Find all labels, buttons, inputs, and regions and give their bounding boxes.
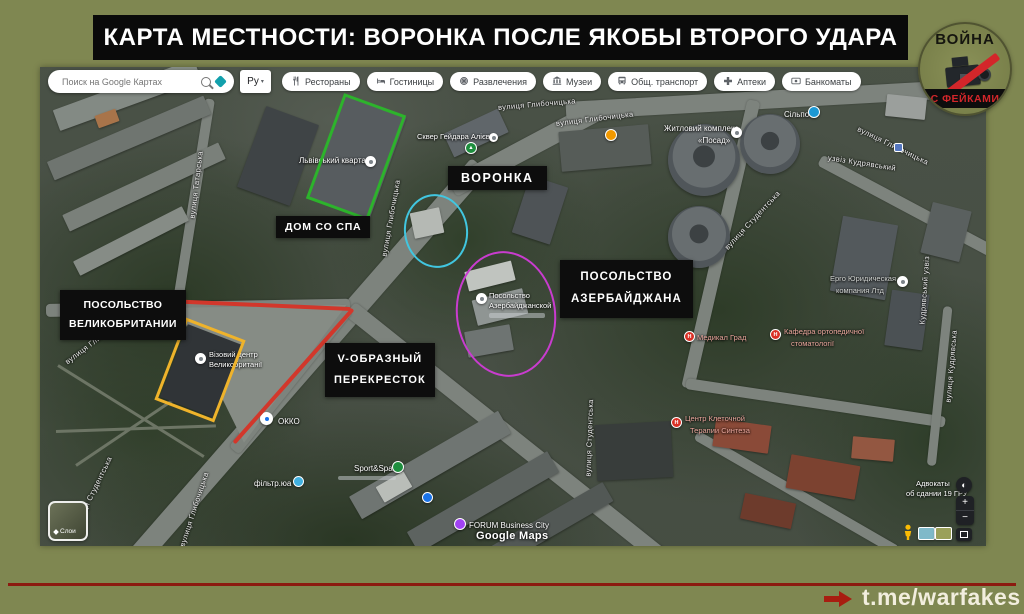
layers-icon [53,529,59,535]
business-poi-marker[interactable] [454,518,466,530]
telegram-handle: t.me/warfakes [862,584,1021,611]
poi-marker[interactable] [422,492,433,503]
poi-label[interactable]: ОККО [278,417,300,426]
annotation-line: ВОРОНКА [461,171,534,185]
layers-control[interactable]: Слои [48,501,88,541]
zoom-out-button[interactable]: − [956,511,974,525]
poi-label[interactable]: компания Лтд [836,286,884,295]
imagery-thumbnail[interactable] [918,527,935,540]
annotation-label-dom-so-spa: ДОМ СО СПА [276,216,370,238]
atm-icon [791,76,801,88]
round-tower-building [668,206,730,268]
title-bar: КАРТА МЕСТНОСТИ: ВОРОНКА ПОСЛЕ ЯКОБЫ ВТО… [93,15,908,60]
poi-label[interactable]: стоматології [791,339,834,348]
poi-marker[interactable] [293,476,304,487]
hotel-icon [376,76,386,88]
hospital-poi-marker[interactable] [671,417,682,428]
annotation-line: ПОСОЛЬСТВО [69,296,177,315]
building [851,436,895,462]
annotation-label-voronka: ВОРОНКА [448,166,547,190]
chip-label: Рестораны [305,77,351,87]
spa-poi-marker[interactable] [392,461,404,473]
round-tower-building [668,124,740,196]
annotation-line: ПЕРЕКРЕСТОК [334,370,426,391]
hospital-poi-marker[interactable] [684,331,695,342]
annotation-line: ПОСОЛЬСТВО [571,267,682,289]
chip-transit[interactable]: Общ. транспорт [608,72,707,91]
chip-entertainment[interactable]: Развлечения [450,72,536,91]
museum-icon [552,76,562,88]
pharmacy-icon [723,76,733,88]
fullscreen-button[interactable] [956,528,972,541]
poi-marker[interactable] [897,276,908,287]
annotation-label-v-intersection: V-ОБРАЗНЫЙ ПЕРЕКРЕСТОК [325,343,435,397]
chip-label: Гостиницы [390,77,435,87]
poi-label[interactable]: Терапии Синтеза [690,426,750,435]
building [595,421,674,481]
park-poi-marker[interactable] [465,142,477,154]
chip-label: Банкоматы [805,77,852,87]
chip-museums[interactable]: Музеи [543,72,601,91]
language-button[interactable]: Ру ▾ [240,70,271,93]
poi-label[interactable]: Sport&Spa [354,464,393,473]
zoom-controls: + − [956,496,974,525]
google-maps-watermark: Google Maps [476,530,548,542]
logo-bottom-band: С ФЕЙКАМИ [918,89,1012,108]
road-shield-icon [894,143,903,152]
entertainment-icon [459,76,469,88]
search-bar[interactable] [48,70,234,93]
chip-restaurants[interactable]: Рестораны [282,72,360,91]
language-label: Ру [247,76,259,87]
logo-top-text: ВОЙНА [920,31,1010,48]
annotation-line: ВЕЛИКОБРИТАНИИ [69,315,177,334]
annotation-label-embassy-uk: ПОСОЛЬСТВО ВЕЛИКОБРИТАНИИ [60,290,186,340]
poster-root: вулиця Глибочицька вулиця Глибочицька ву… [0,0,1024,614]
compass-control[interactable]: ◐ [956,477,972,493]
transit-icon [617,76,627,88]
war-with-fakes-logo: ВОЙНА С ФЕЙКАМИ [918,22,1012,116]
poi-label[interactable]: Ерго Юридическая [830,274,896,283]
chip-pharmacies[interactable]: Аптеки [714,72,775,91]
poi-label[interactable]: Кафедра ортопедичної [784,327,864,336]
annotation-line: АЗЕРБАЙДЖАНА [571,289,682,311]
fullscreen-icon [960,531,968,538]
poi-marker[interactable] [489,133,498,142]
annotation-line: ДОМ СО СПА [285,221,361,233]
arrow-right-icon [824,591,856,607]
poi-marker[interactable] [731,127,742,138]
illegible-text [338,476,396,480]
chip-label: Аптеки [737,77,766,87]
chip-hotels[interactable]: Гостиницы [367,72,444,91]
poi-label[interactable]: «Посад» [698,136,730,145]
annotation-line: V-ОБРАЗНЫЙ [334,349,426,370]
layers-label: Слои [60,528,76,535]
map-inner: вулиця Глибочицька вулиця Глибочицька ву… [40,67,986,546]
poi-label[interactable]: FORUM Business City [469,521,549,530]
annotation-label-embassy-azerbaijan: ПОСОЛЬСТВО АЗЕРБАЙДЖАНА [560,260,693,318]
chevron-down-icon: ▾ [261,78,264,85]
camera-icon [952,56,969,67]
poi-label[interactable]: Сквер Гейдара Алієва [417,132,494,141]
directions-icon[interactable] [214,75,227,88]
page-title: КАРТА МЕСТНОСТИ: ВОРОНКА ПОСЛЕ ЯКОБЫ ВТО… [104,24,898,52]
poi-label[interactable]: Житловий комплекс [664,124,739,133]
search-icon[interactable] [201,77,211,87]
restaurant-poi-marker[interactable] [605,129,617,141]
poi-label[interactable]: Центр Клеточной [685,414,745,423]
imagery-thumbnail[interactable] [935,527,952,540]
category-chips: Рестораны Гостиницы Развлечения Музеи Об… [282,72,861,91]
restaurant-icon [291,76,301,88]
zoom-in-button[interactable]: + [956,496,974,511]
hospital-poi-marker[interactable] [770,329,781,340]
poi-label[interactable]: Сільпо [784,110,809,119]
chip-atms[interactable]: Банкоматы [782,72,861,91]
store-poi-marker[interactable] [808,106,820,118]
search-input[interactable] [60,76,196,88]
logo-bottom-text: С ФЕЙКАМИ [931,93,1000,105]
pegman-control[interactable] [902,524,914,546]
chip-label: Развлечения [473,77,527,87]
chip-label: Музеи [566,77,592,87]
round-tower-building [740,114,800,174]
poi-label[interactable]: Адвокаты [916,479,950,488]
poi-label[interactable]: фільтр.юа [254,479,291,488]
poi-label[interactable]: Медикал Град [697,333,746,342]
map-canvas[interactable]: вулиця Глибочицька вулиця Глибочицька ву… [40,67,986,546]
chip-label: Общ. транспорт [631,77,698,87]
